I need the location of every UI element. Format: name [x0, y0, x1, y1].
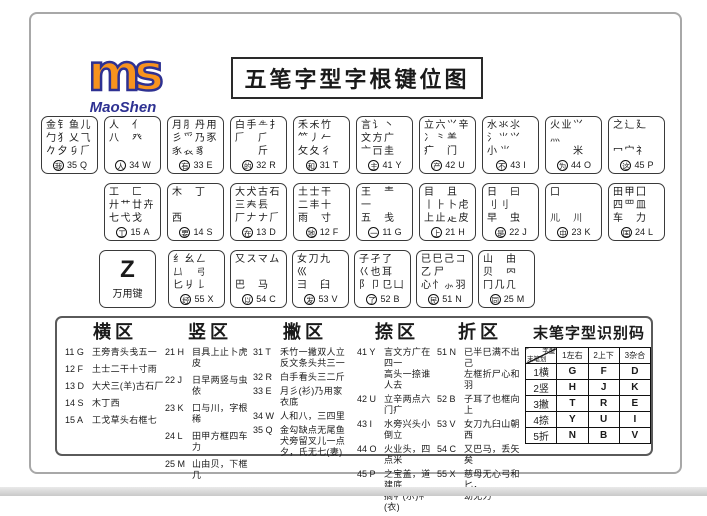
key-roots: 目 且丨⺊卜虍上止龰皮 [424, 186, 472, 226]
zone-item: 51 N已半巳满不出己左框折尸心和羽 [437, 347, 523, 391]
key-roots-line: 五 戋 [361, 212, 409, 225]
key-caption: 有33E [172, 159, 220, 171]
key-code: 31 [320, 159, 330, 171]
key-roots-line: 勹犭乂⺄ [46, 132, 94, 145]
zone-pie: 撇区 31 T禾竹一撇双人立反文条头共三一32 R白手看头三二斤33 E月彡(衫… [253, 320, 357, 461]
key-caption: 工15A [109, 226, 157, 238]
key-roots-line: 纟幺𠃋 [173, 253, 221, 266]
zone-heng-items: 11 G王旁青头戋五一12 F土士二干十寸雨13 D大犬三(羊)古石厂14 S木… [65, 346, 165, 426]
table-row-label: 4捺 [526, 412, 557, 428]
key-roots-line: 白手𠂒扌 [235, 119, 283, 132]
key-roots-line [235, 266, 283, 279]
key-roots-line: 巛 [297, 266, 345, 279]
key-code: 54 [256, 293, 266, 305]
key-freq-char: 一 [368, 227, 379, 238]
key-roots-line: 巴 马 [235, 279, 283, 292]
key-caption: 和31T [298, 159, 346, 171]
key-f: 土士干二丰十雨 寸地12F [293, 183, 350, 241]
zone-item-code: 54 C [437, 444, 464, 466]
zone-item: 11 G王旁青头戋五一 [65, 347, 165, 358]
zone-pie-items: 31 T禾竹一撇双人立反文条头共三一32 R白手看头三二斤33 E月彡(衫)乃用… [253, 346, 357, 458]
table-cell: B [588, 428, 619, 444]
key-caption: 主41Y [361, 159, 409, 171]
key-freq-char: 这 [620, 160, 631, 171]
key-caption: 要14S [172, 226, 220, 238]
table-cell: E [619, 396, 650, 412]
key-freq-char: 和 [306, 160, 317, 171]
key-h: 目 且丨⺊卜虍上止龰皮上21H [419, 183, 476, 241]
table-cell: V [619, 428, 650, 444]
key-roots-line: 米 [550, 145, 598, 158]
key-code: 52 [380, 293, 390, 305]
key-freq-char: 主 [368, 160, 379, 171]
table-cell: H [557, 380, 588, 396]
key-d: 大犬古石三𡗗镸厂𠂇ナ𠂆在13D [230, 183, 287, 241]
key-roots: 纟幺𠃋𠙴 弓匕𠂈𠄌 [173, 253, 221, 293]
key-freq-char: 同 [490, 294, 501, 305]
key-roots-line: 𠙴 弓 [173, 266, 221, 279]
key-roots-line: 目 且 [424, 186, 472, 199]
key-m: 山 由贝 𠔿冂几𠘧同25M [478, 250, 535, 308]
zone-item: 31 T禾竹一撇双人立反文条头共三一 [253, 347, 357, 369]
page-edge-shadow [0, 487, 707, 496]
key-u: 立六⺍辛冫⺀⺷疒 门产42U [419, 116, 476, 174]
key-roots-line: 𡕒 𠆢 [109, 145, 157, 158]
key-roots-line: 彐 臼 [297, 279, 345, 292]
key-roots-line: 厂𠂇ナ𠂆 [235, 212, 283, 225]
key-i: 水氺⺢氵⺌⺍小𡭔⺌不43I [482, 116, 539, 174]
key-roots-line: 一 [361, 199, 409, 212]
key-g: 王 龶一五 戋一11G [356, 183, 413, 241]
logo: ms MaoShen [68, 48, 178, 116]
key-code: 41 [382, 159, 392, 171]
zone-item-code: 13 D [65, 381, 92, 392]
key-e: 月⺼丹用彡⺤乃豕𧰨𧘇豸有33E [167, 116, 224, 174]
key-letter: S [207, 226, 213, 238]
zone-item-code: 23 K [165, 403, 192, 425]
key-roots-line: 刂⺉𠁡 [487, 199, 535, 212]
key-roots-line: 廾艹廿𠦄 [109, 199, 157, 212]
key-freq-char: 在 [242, 227, 253, 238]
key-x: 纟幺𠃋𠙴 弓匕𠂈𠄌经55X [168, 250, 225, 308]
key-letter: H [458, 226, 465, 238]
key-caption: 发53V [297, 293, 345, 305]
zone-item: 52 B子耳了也框向上 [437, 394, 523, 416]
key-roots-line: 灬 [550, 132, 598, 145]
key-letter: A [144, 226, 150, 238]
key-roots-line: 土士干 [298, 186, 346, 199]
zone-item-text: 水旁兴头小倒立 [384, 419, 437, 441]
key-roots-line: 冂几𠘧 [483, 279, 531, 292]
key-letter: C [269, 293, 276, 305]
zone-item-text: 日早两竖与虫依 [192, 375, 255, 397]
key-s: 木 丁 西要14S [167, 183, 224, 241]
zone-item-text: 口与川，字根稀 [192, 403, 255, 425]
key-letter: K [585, 226, 591, 238]
key-caption: 我35Q [46, 159, 94, 171]
zone-item-text: 木丁西 [92, 398, 120, 409]
key-n: 已巳己コ乙𠂋尸心忄⺗羽民51N [416, 250, 473, 308]
key-q: 金钅鱼儿勹犭乂⺄𠂊夕𠂎𠂆我35Q [41, 116, 98, 174]
key-letter: L [648, 226, 653, 238]
key-caption: 在13D [235, 226, 283, 238]
zone-item-text: 目具上止卜虎皮 [192, 347, 255, 369]
key-roots-line [550, 199, 598, 212]
table-cell: U [588, 412, 619, 428]
key-roots-line: 巜也耳 [359, 266, 407, 279]
key-caption: 的32R [235, 159, 283, 171]
zone-na-title: 捺区 [357, 320, 437, 344]
zone-item-text: 工戈草头右框七 [92, 415, 157, 426]
key-letter: D [269, 226, 276, 238]
key-caption: 一11G [361, 226, 409, 238]
zone-item-code: 42 U [357, 394, 384, 416]
zone-item-code: 44 O [357, 444, 384, 466]
key-a: 工 匚廾艹廿𠦄七弋戈工15A [104, 183, 161, 241]
key-freq-char: 人 [115, 160, 126, 171]
key-caption: 产42U [424, 159, 472, 171]
zone-item: 12 F土士二干十寸雨 [65, 364, 165, 375]
key-c: 又スマム 巴 马以54C [230, 250, 287, 308]
key-code: 25 [504, 293, 514, 305]
key-letter: V [332, 293, 338, 305]
zone-shu: 竖区 21 H目具上止卜虎皮22 J日早两竖与虫依23 K口与川，字根稀24 L… [165, 320, 255, 487]
key-j: 日 曰刂⺉𠁡早 虫是22J [482, 183, 539, 241]
key-code: 24 [635, 226, 645, 238]
key-letter: N [455, 293, 462, 305]
zone-item-code: 15 A [65, 415, 92, 426]
key-freq-char: 以 [242, 294, 253, 305]
key-freq-char: 产 [431, 160, 442, 171]
zone-item: 32 R白手看头三二斤 [253, 372, 357, 383]
table-corner-top: 字型 [542, 348, 555, 355]
key-caption: 国24L [613, 226, 661, 238]
table-column-header: 1左右 [557, 348, 588, 364]
zone-item-text: 火业头，四点米 [384, 444, 437, 466]
zone-item-text: 子耳了也框向上 [464, 394, 523, 416]
zone-item-text: 山由贝，下框几 [192, 459, 255, 481]
key-freq-char: 了 [366, 294, 377, 305]
zone-item-text: 女刀九臼山朝西 [464, 419, 523, 441]
zone-item-text: 王旁青头戋五一 [92, 347, 157, 358]
key-letter: R [269, 159, 276, 171]
key-roots: 白手𠂒扌𠂆 ⺁ 斤 [235, 119, 283, 159]
key-code: 14 [193, 226, 203, 238]
zone-item-text: 立辛两点六门疒 [384, 394, 437, 416]
key-letter: U [458, 159, 465, 171]
key-y: 言讠丶文方广亠𠮛圭主41Y [356, 116, 413, 174]
key-l: 田甲囗四罒皿车 力国24L [608, 183, 665, 241]
recognition-table: 末笔字型识别码 字型末笔划1左右2上下3杂合1横GFD2竖HJK3撇TRE4捺Y… [525, 322, 653, 444]
table-cell: T [557, 396, 588, 412]
maoshen-logo-icon: ms [68, 48, 178, 98]
zone-item: 42 U立辛两点六门疒 [357, 394, 437, 416]
key-roots-line: 人 亻 [109, 119, 157, 132]
key-roots-line: 之辶廴 [613, 119, 661, 132]
key-code: 43 [510, 159, 520, 171]
zone-item: 55 X慈母无心弓和匕，幼无力 [437, 469, 523, 502]
key-roots-line: 𠂊夕𠂎𠂆 [46, 145, 94, 158]
zone-item-code: 14 S [65, 398, 92, 409]
key-caption: 经55X [173, 293, 221, 305]
key-letter: I [523, 159, 526, 171]
key-caption: 为44O [550, 159, 598, 171]
key-p: 之辶廴 冖宀礻这45P [608, 116, 665, 174]
key-letter: W [142, 159, 151, 171]
key-roots: 又スマム 巴 马 [235, 253, 283, 293]
key-roots-line: 亠𠮛圭 [361, 145, 409, 158]
key-caption: 同25M [483, 293, 531, 305]
zone-item-text: 慈母无心弓和匕，幼无力 [464, 469, 523, 502]
zone-item-code: 12 F [65, 364, 92, 375]
mnemonics-panel: 横区 11 G王旁青头戋五一12 F土士二干十寸雨13 D大犬三(羊)古石厂14… [55, 316, 653, 456]
zone-item-code: 41 Y [357, 347, 384, 391]
key-roots-line: 匕𠂈𠄌 [173, 279, 221, 292]
zone-item: 21 H目具上止卜虎皮 [165, 347, 255, 369]
zone-item-code: 31 T [253, 347, 280, 369]
zone-item: 53 V女刀九臼山朝西 [437, 419, 523, 441]
key-roots: 立六⺍辛冫⺀⺷疒 门 [424, 119, 472, 159]
table-cell: Y [557, 412, 588, 428]
key-roots: 火业𭕄灬 米 [550, 119, 598, 159]
key-roots-line: 田甲囗 [613, 186, 661, 199]
key-caption: 这45P [613, 159, 661, 171]
key-roots-line: 日 曰 [487, 186, 535, 199]
key-letter: Q [80, 159, 87, 171]
key-code: 42 [445, 159, 455, 171]
key-roots-line: 𫶧 川 [550, 212, 598, 225]
key-letter: J [522, 226, 527, 238]
zone-item: 34 W人和八，三四里 [253, 411, 357, 422]
table-cell: R [588, 396, 619, 412]
zone-item-text: 禾竹一撇双人立反文条头共三一 [280, 347, 345, 369]
zone-item-code: 33 E [253, 386, 280, 408]
zone-item-code: 53 V [437, 419, 464, 441]
key-roots: 金钅鱼儿勹犭乂⺄𠂊夕𠂎𠂆 [46, 119, 94, 159]
table-cell: N [557, 428, 588, 444]
zone-item-text: 月彡(衫)乃用家衣底 [280, 386, 342, 408]
zone-item-text: 田甲方框四车力 [192, 431, 255, 453]
key-roots-line: 小𡭔⺌ [487, 145, 535, 158]
key-roots: 人 亻八 癶𡕒 𠆢 [109, 119, 157, 159]
key-r: 白手𠂒扌𠂆 ⺁ 斤的32R [230, 116, 287, 174]
key-letter: M [517, 293, 525, 305]
key-roots-line: 二丰十 [298, 199, 346, 212]
zone-zhe-items: 51 N已半巳满不出己左框折尸心和羽52 B子耳了也框向上53 V女刀九臼山朝西… [437, 346, 523, 502]
table-row-label: 1横 [526, 364, 557, 380]
key-letter: G [395, 226, 402, 238]
key-o: 火业𭕄灬 米为44O [545, 116, 602, 174]
key-roots: 大犬古石三𡗗镸厂𠂇ナ𠂆 [235, 186, 283, 226]
key-roots: 口 𫶧 川 [550, 186, 598, 226]
key-roots-line: 车 力 [613, 212, 661, 225]
zone-item: 24 L田甲方框四车力 [165, 431, 255, 453]
zone-item: 13 D大犬三(羊)古石厂 [65, 381, 165, 392]
key-code: 13 [256, 226, 266, 238]
key-roots-line: 禾𥝌竹 [298, 119, 346, 132]
key-caption: 中23K [550, 226, 598, 238]
key-roots-line: 阝卩㔾凵 [359, 279, 407, 292]
table-row-label: 3撇 [526, 396, 557, 412]
key-v: 女刀九巛彐 臼发53V [292, 250, 349, 308]
zone-item-text: 白手看头三二斤 [280, 372, 345, 383]
zone-zhe-title: 折区 [437, 320, 523, 344]
key-code: 15 [130, 226, 140, 238]
chart-title: 五笔字型字根键位图 [244, 62, 469, 94]
key-roots: 木 丁 西 [172, 186, 220, 226]
key-code: 45 [634, 159, 644, 171]
table-corner-cell: 字型末笔划 [526, 348, 557, 364]
key-freq-char: 国 [621, 227, 632, 238]
key-roots-line: 冖宀礻 [613, 145, 661, 158]
zone-item-code: 51 N [437, 347, 464, 391]
key-letter: Y [396, 159, 402, 171]
key-roots-line: 工 匚 [109, 186, 157, 199]
key-letter: X [208, 293, 214, 305]
chart-title-box: 五笔字型字根键位图 [231, 57, 483, 99]
key-roots: 女刀九巛彐 臼 [297, 253, 345, 293]
key-roots: 已巳己コ乙𠂋尸心忄⺗羽 [421, 253, 469, 293]
zone-item: 35 Q金勾缺点无尾鱼犬旁留叉儿一点夕，氏无七(妻) [253, 425, 357, 458]
key-freq-char: 经 [180, 294, 191, 305]
table-cell: F [588, 364, 619, 380]
key-code: 32 [256, 159, 266, 171]
zone-item: 54 C又巴马，丢矢矣 [437, 444, 523, 466]
key-caption: 人34W [109, 159, 157, 171]
table-row-label: 5折 [526, 428, 557, 444]
key-caption: 地12F [298, 226, 346, 238]
key-t: 禾𥝌竹⺮丿𠂉攵夂彳和31T [293, 116, 350, 174]
zone-item-code: 32 R [253, 372, 280, 383]
key-roots-line: 子孑了 [359, 253, 407, 266]
table-cell: K [619, 380, 650, 396]
key-roots-line: 西 [172, 212, 220, 225]
key-roots: 田甲囗四罒皿车 力 [613, 186, 661, 226]
zone-item: 41 Y言文方广在四一高头一捺谁人去 [357, 347, 437, 391]
key-roots: 月⺼丹用彡⺤乃豕𧰨𧘇豸 [172, 119, 220, 159]
key-k: 口 𫶧 川中23K [545, 183, 602, 241]
zone-item-text: 金勾缺点无尾鱼犬旁留叉儿一点夕，氏无七(妻) [280, 425, 345, 458]
key-freq-char: 中 [557, 227, 568, 238]
key-roots-line: 丨⺊卜虍 [424, 199, 472, 212]
key-w: 人 亻八 癶𡕒 𠆢人34W [104, 116, 161, 174]
zone-item-code: 22 J [165, 375, 192, 397]
key-freq-char: 发 [304, 294, 315, 305]
key-code: 44 [571, 159, 581, 171]
key-roots-line: 彡⺤乃豕 [172, 132, 220, 145]
key-roots-line: 乙𠂋尸 [421, 266, 469, 279]
zone-item-text: 人和八，三四里 [280, 411, 345, 422]
key-roots-line: 口 [550, 186, 598, 199]
key-roots: 之辶廴 冖宀礻 [613, 119, 661, 159]
key-roots-line: 八 癶 [109, 132, 157, 145]
zone-item: 43 I水旁兴头小倒立 [357, 419, 437, 441]
key-roots-line: 又スマム [235, 253, 283, 266]
key-roots-line: 𧰨𧘇豸 [172, 145, 220, 158]
key-code: 21 [445, 226, 455, 238]
zone-item-code: 25 M [165, 459, 192, 481]
zone-item: 22 J日早两竖与虫依 [165, 375, 255, 397]
key-roots-line: 山 由 [483, 253, 531, 266]
key-caption: 民51N [421, 293, 469, 305]
zone-item-text: 土士二干十寸雨 [92, 364, 157, 375]
key-freq-char: 不 [496, 160, 507, 171]
key-roots-line: 王 龶 [361, 186, 409, 199]
key-roots-line: 上止龰皮 [424, 212, 472, 225]
z-key-label: 万用键 [113, 285, 143, 300]
key-roots-line: 七弋戈 [109, 212, 157, 225]
key-caption: 是22J [487, 226, 535, 238]
key-roots-line: 月⺼丹用 [172, 119, 220, 132]
key-roots-line: 斤 [235, 145, 283, 158]
key-code: 22 [509, 226, 519, 238]
zone-item-code: 11 G [65, 347, 92, 358]
key-freq-char: 是 [495, 227, 506, 238]
key-roots: 子孑了巜也耳阝卩㔾凵 [359, 253, 407, 293]
zone-item: 25 M山由贝，下框几 [165, 459, 255, 481]
table-column-header: 3杂合 [619, 348, 650, 364]
key-roots-line: 疒 门 [424, 145, 472, 158]
key-roots: 山 由贝 𠔿冂几𠘧 [483, 253, 531, 293]
key-caption: 了52B [359, 293, 407, 305]
key-letter: E [207, 159, 213, 171]
key-letter: T [333, 159, 339, 171]
zone-item-text: 大犬三(羊)古石厂 [92, 381, 164, 392]
zone-pie-title: 撇区 [253, 320, 357, 344]
key-caption: 以54C [235, 293, 283, 305]
zone-item: 23 K口与川，字根稀 [165, 403, 255, 425]
key-freq-char: 我 [53, 160, 64, 171]
key-roots-line: 心忄⺗羽 [421, 279, 469, 292]
key-roots: 言讠丶文方广亠𠮛圭 [361, 119, 409, 159]
key-roots-line: 攵夂彳 [298, 145, 346, 158]
key-code: 11 [382, 226, 391, 238]
table-cell: I [619, 412, 650, 428]
logo-wordmark: MaoShen [68, 99, 178, 116]
key-freq-char: 要 [179, 227, 190, 238]
key-roots-line: 冫⺀⺷ [424, 132, 472, 145]
key-caption: 上21H [424, 226, 472, 238]
key-roots-line: 贝 𠔿 [483, 266, 531, 279]
zone-zhe: 折区 51 N已半巳满不出己左框折尸心和羽52 B子耳了也框向上53 V女刀九臼… [437, 320, 523, 505]
key-code: 12 [320, 226, 330, 238]
table-cell: G [557, 364, 588, 380]
key-freq-char: 工 [116, 227, 127, 238]
zone-item-code: 34 W [253, 411, 280, 422]
key-freq-char: 有 [179, 160, 190, 171]
zone-item-text: 已半巳满不出己左框折尸心和羽 [464, 347, 523, 391]
key-freq-char: 地 [306, 227, 317, 238]
key-roots: 禾𥝌竹⺮丿𠂉攵夂彳 [298, 119, 346, 159]
key-letter: F [333, 226, 339, 238]
zone-shu-items: 21 H目具上止卜虎皮22 J日早两竖与虫依23 K口与川，字根稀24 L田甲方… [165, 346, 255, 481]
key-code: 34 [129, 159, 139, 171]
recognition-table-title: 末笔字型识别码 [525, 322, 653, 343]
zone-shu-title: 竖区 [165, 320, 255, 344]
key-z: Z 万用键 [99, 250, 156, 308]
key-caption: 不43I [487, 159, 535, 171]
key-roots-line [172, 199, 220, 212]
key-roots-line: 已巳己コ [421, 253, 469, 266]
z-key-letter: Z [120, 258, 135, 282]
zone-item-code: 21 H [165, 347, 192, 369]
zone-item-text: 又巴马，丢矢矣 [464, 444, 523, 466]
key-roots-line: 水氺⺢ [487, 119, 535, 132]
key-b: 子孑了巜也耳阝卩㔾凵了52B [354, 250, 411, 308]
zone-item-code: 24 L [165, 431, 192, 453]
key-roots-line: 大犬古石 [235, 186, 283, 199]
key-roots-line: 木 丁 [172, 186, 220, 199]
